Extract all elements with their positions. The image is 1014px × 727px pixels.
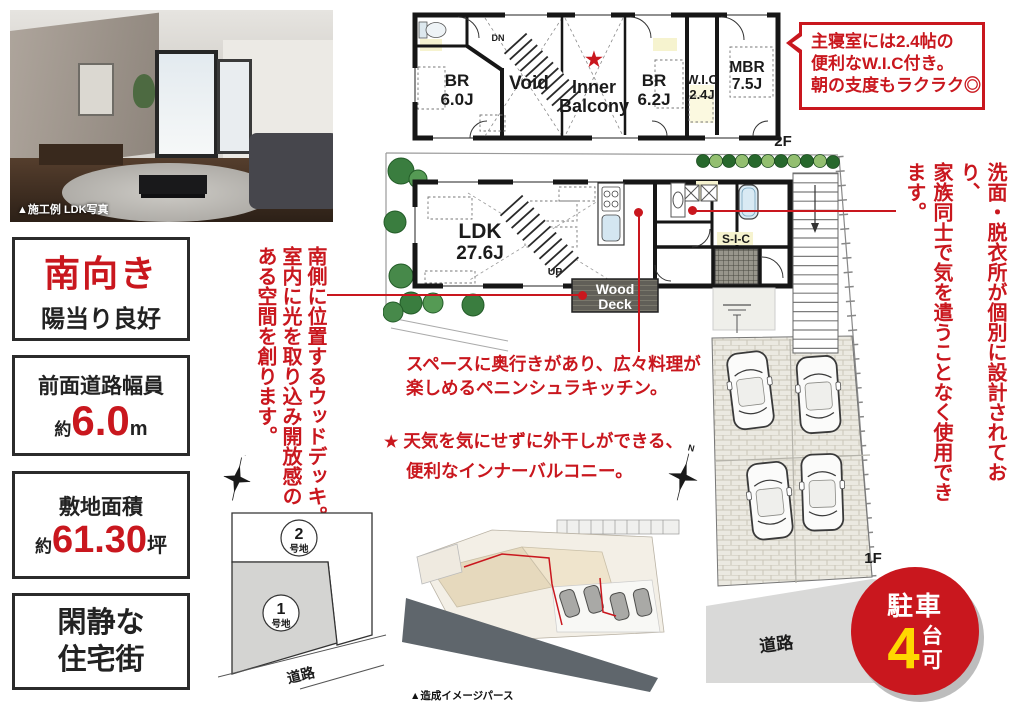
car-icon-4 [799, 454, 847, 532]
room-br1: BR [445, 71, 470, 90]
facing-subtitle: 陽当り良好 [41, 299, 161, 334]
photo-caption: ▲施工例 LDK写真 [17, 201, 109, 217]
quiet-line2: 住宅街 [57, 642, 144, 678]
facing-title: 南向き [44, 245, 158, 297]
sic-tile-floor [715, 249, 758, 284]
bubble-line-3: 朝の支度もラクラク◎ [811, 75, 973, 97]
kitchen-counter [598, 183, 624, 245]
room-br2-size: 6.2J [637, 90, 670, 109]
floor-plan-2f: ★ DN BR 6.0J Void Inner Balcony BR 6.2J … [405, 8, 800, 148]
bubble-tail-inner [792, 36, 802, 50]
toilet-icon [419, 22, 446, 38]
photo-art-frame [78, 63, 114, 116]
land-area-prefix: 約 [35, 532, 52, 557]
room-sic: S-I-C [722, 232, 750, 246]
bubble-line-1: 主寝室には2.4帖の [811, 31, 973, 53]
land-area-value: 61.30 [52, 521, 147, 559]
callout-dot-washroom [688, 206, 697, 215]
photo-plant [133, 74, 155, 108]
road-width-prefix: 約 [54, 415, 71, 440]
info-box-road-width: 前面道路幅員 約 6.0 m [12, 355, 190, 456]
perspective-view [402, 492, 680, 692]
info-box-facing: 南向き 陽当り良好 [12, 237, 190, 341]
quiet-line1: 閑静な [57, 605, 144, 641]
land-area-unit: 坪 [147, 529, 167, 558]
stairs-up-label: UP [548, 266, 563, 278]
road-label: 道路 [758, 632, 795, 656]
lot-1-suffix: 号地 [271, 618, 291, 630]
room-br2: BR [642, 71, 667, 90]
exterior-stairs [793, 173, 838, 353]
parking-badge: 駐車 4 台 可 [851, 567, 979, 695]
ldk-photo: ▲施工例 LDK写真 [10, 10, 333, 222]
land-area-label: 敷地面積 [59, 491, 143, 521]
bubble-line-2: 便利なW.I.C付き。 [811, 53, 973, 75]
balcony-note: ★天気を気にせずに外干しができる、 便利なインナーバルコニー。 [384, 427, 683, 486]
floor-1f-label: 1F [864, 550, 882, 567]
compass-icon-site: N [219, 455, 258, 503]
kitchen-note-line1: スペースに奥行きがあり、広々料理が [406, 352, 701, 376]
wood-deck-label-2: Deck [598, 296, 632, 312]
room-wic: W.I.C [686, 72, 718, 87]
callout-line-kitchen [638, 212, 640, 352]
road-width-value: 6.0 [71, 400, 129, 442]
site-lot-plan: N 2 号地 1 号地 道路 [218, 455, 398, 705]
room-ldk-size: 27.6J [456, 243, 504, 264]
callout-dot-kitchen [634, 208, 643, 217]
room-wic-size: 2.4J [689, 87, 714, 102]
badge-unit-bottom: 可 [922, 649, 943, 672]
washroom-note: 洗面・脱衣所が個別に設計されており、 家族同士で気を遣うことなく使用できます。 [900, 162, 1008, 514]
room-inner-balcony-1: Inner [572, 77, 616, 97]
entrance-approach [713, 288, 775, 333]
lot-2-number: 2 [295, 526, 304, 543]
car-icon-2 [794, 355, 844, 434]
callout-line-washroom [692, 210, 896, 212]
wic-callout-bubble: 主寝室には2.4帖の 便利なW.I.C付き。 朝の支度もラクラク◎ [799, 22, 985, 110]
room-void: Void [509, 73, 549, 94]
photo-doorway [217, 59, 252, 154]
badge-number: 4 [887, 621, 919, 676]
badge-unit-top: 台 [922, 625, 943, 648]
kitchen-note: スペースに奥行きがあり、広々料理が 楽しめるペニンシュラキッチン。 [406, 352, 701, 400]
photo-coffee-table [139, 175, 207, 194]
room-inner-balcony-2: Balcony [559, 96, 629, 116]
callout-line-wooddeck [327, 294, 585, 296]
info-box-land-area: 敷地面積 約 61.30 坪 [12, 471, 190, 579]
room-mbr: MBR [729, 59, 764, 76]
pers-fence [557, 520, 679, 534]
balcony-star-icon-text: ★ [384, 434, 403, 451]
photo-window [155, 50, 218, 158]
hedge-icons [697, 155, 840, 169]
perspective-caption: ▲造成イメージパース [410, 688, 514, 703]
room-br1-size: 6.0J [440, 90, 473, 109]
lot-2-suffix: 号地 [289, 543, 309, 555]
room-mbr-size: 7.5J [732, 76, 762, 93]
road-width-label: 前面道路幅員 [38, 370, 164, 400]
road-width-unit: m [130, 418, 148, 441]
balcony-note-line2: 便利なインナーバルコニー。 [384, 457, 683, 486]
room-ldk: LDK [458, 220, 501, 243]
bathtub-icon [739, 185, 758, 219]
washroom-note-line1: 洗面・脱衣所が個別に設計されており、 [954, 162, 1008, 514]
info-box-quiet: 閑静な 住宅街 [12, 593, 190, 690]
kitchen-note-line2: 楽しめるペニンシュラキッチン。 [406, 376, 701, 400]
flyer-canvas: ▲施工例 LDK写真 南向き 陽当り良好 前面道路幅員 約 6.0 m 敷地面積… [0, 0, 1014, 727]
photo-sofa [249, 133, 333, 209]
wood-deck-label-1: Wood [596, 281, 635, 297]
compass-n-label: N [687, 442, 696, 453]
compass-n-label-site: N [240, 455, 248, 457]
balcony-star-icon: ★ [585, 49, 603, 71]
stairs-dn-label: DN [492, 33, 505, 43]
balcony-note-line1: 天気を気にせずに外干しができる、 [403, 431, 683, 451]
photo-sideboard [39, 144, 123, 165]
site-road-label: 道路 [285, 664, 317, 687]
callout-dot-wooddeck [578, 291, 587, 300]
lot-1-number: 1 [277, 601, 286, 618]
washroom-note-line2: 家族同士で気を遣うことなく使用できます。 [900, 162, 954, 514]
